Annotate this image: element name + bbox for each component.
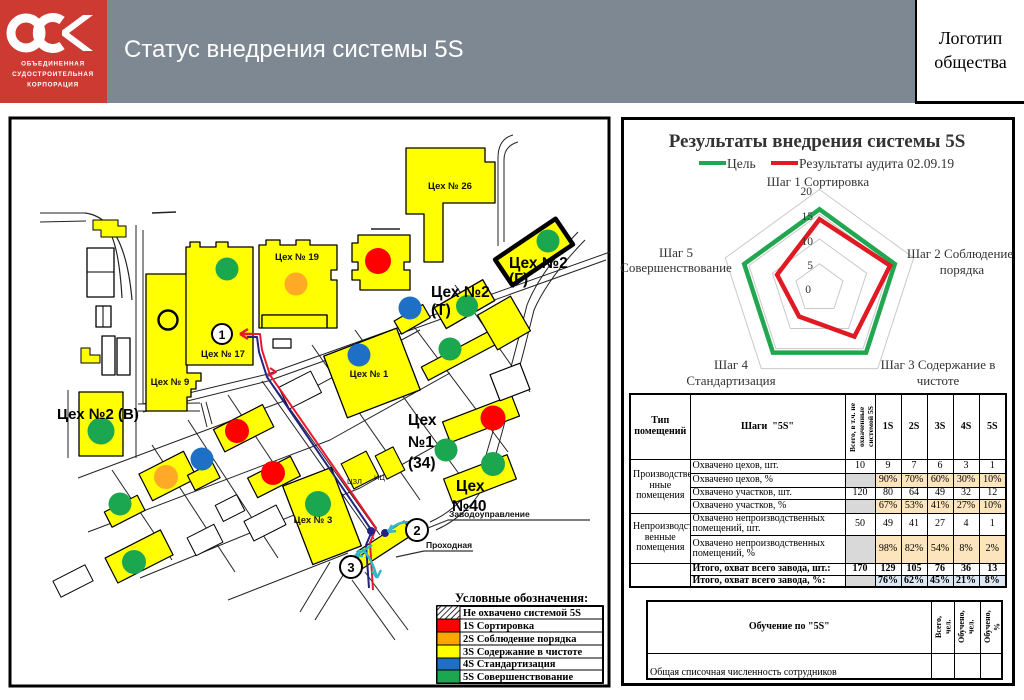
svg-text:порядка: порядка xyxy=(940,262,985,277)
svg-text:10: 10 xyxy=(802,236,814,248)
svg-text:чистоте: чистоте xyxy=(917,373,960,388)
svg-text:Цель: Цель xyxy=(727,156,756,171)
svg-text:15: 15 xyxy=(802,211,814,223)
svg-text:Стандартизация: Стандартизация xyxy=(686,373,775,388)
svg-text:0: 0 xyxy=(805,284,811,296)
svg-text:Совершенствование: Совершенствование xyxy=(620,260,732,275)
svg-text:Шаг 5: Шаг 5 xyxy=(659,245,693,260)
svg-text:Шаг 4: Шаг 4 xyxy=(714,357,748,372)
svg-text:Шаг 3 Содержание в: Шаг 3 Содержание в xyxy=(881,357,996,372)
svg-text:Шаг 2 Соблюдение: Шаг 2 Соблюдение xyxy=(907,246,1014,261)
svg-text:Шаг 1 Сортировка: Шаг 1 Сортировка xyxy=(767,174,870,189)
svg-text:Результаты аудита 02.09.19: Результаты аудита 02.09.19 xyxy=(799,156,954,171)
svg-text:Результаты внедрения системы 5: Результаты внедрения системы 5S xyxy=(669,131,966,152)
svg-text:5: 5 xyxy=(807,260,813,272)
